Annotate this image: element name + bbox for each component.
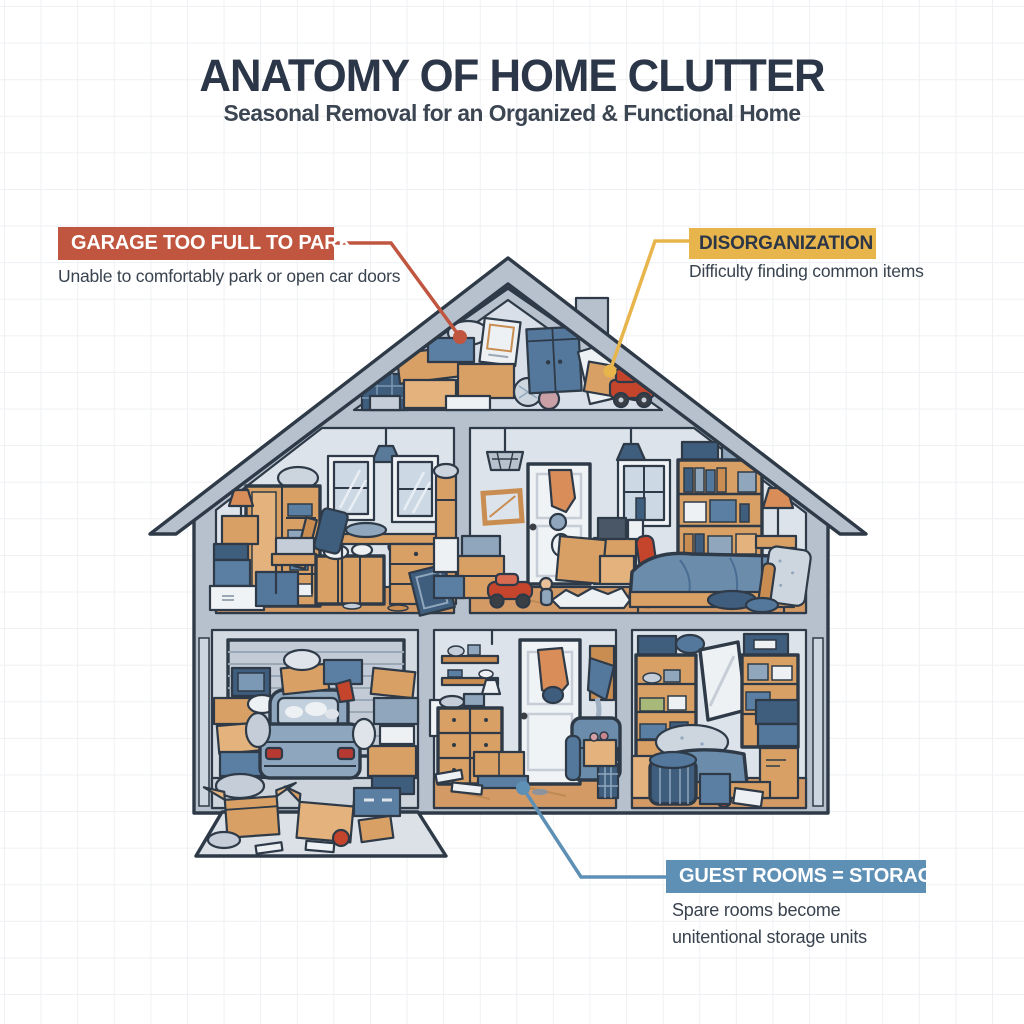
connector-disorganization-callout [604,241,690,378]
canvas-background: ANATOMY OF HOME CLUTTER Seasonal Removal… [0,0,1024,1024]
attic-clutter [362,318,654,410]
callout-disorganization-description: Difficulty finding common items [689,261,939,282]
callout-garage-description: Unable to comfortably park or open car d… [58,266,418,287]
callout-disorganization-label: DISORGANIZATION [689,228,876,259]
callout-garage-label: GARAGE TOO FULL TO PARK [58,227,334,260]
callout-guest-rooms-label: GUEST ROOMS = STORAGE [666,860,926,893]
callout-guest-rooms-description: Spare rooms become unitentional storage … [672,897,917,951]
window [392,456,438,522]
car [260,690,360,778]
window [618,460,670,526]
round-hamper [650,752,696,804]
upper-left-room-clutter [210,428,458,616]
garage-contents [214,640,418,798]
